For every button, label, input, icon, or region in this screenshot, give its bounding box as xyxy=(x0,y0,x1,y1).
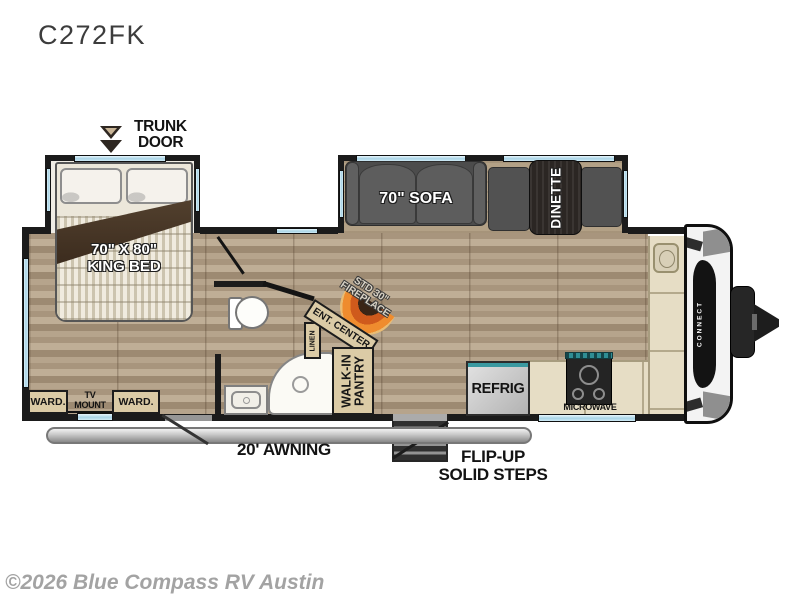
tv-mount-label: TV MOUNT xyxy=(68,391,112,413)
window-top-mid xyxy=(276,228,318,235)
wardrobe-right-label: WARD. xyxy=(119,396,154,408)
trunk-door-arrow2-icon xyxy=(100,140,122,153)
page-title: C272FK xyxy=(38,20,146,51)
trunk-door-label-line1: TRUNK xyxy=(134,119,187,135)
bath-wall-vertical xyxy=(215,354,221,414)
stove-burner-small-left xyxy=(572,388,584,400)
pantry-label-line1: WALK-IN xyxy=(340,354,353,407)
sofa: 70" SOFA xyxy=(345,161,487,226)
window-bedroom-left xyxy=(23,258,29,388)
front-cap-window: CONNECT xyxy=(693,260,716,388)
wardrobe-left-label: WARD. xyxy=(31,396,66,408)
hitch-jack xyxy=(752,314,757,330)
dinette-table: DINETTE xyxy=(529,160,582,235)
pillow-left xyxy=(60,168,122,204)
tv-window xyxy=(77,413,113,421)
wardrobe-right: WARD. xyxy=(112,390,160,414)
bath-sink-vanity xyxy=(224,385,268,415)
stove-burner-large xyxy=(579,365,599,385)
bath-faucet xyxy=(243,397,250,404)
stove-knob-panel xyxy=(565,352,613,359)
steps-label: FLIP-UP SOLID STEPS xyxy=(415,448,571,484)
sofa-label: 70" SOFA xyxy=(346,190,486,208)
king-bed-label-line2: KING BED xyxy=(57,259,191,276)
trunk-door-arrow-inner-icon xyxy=(105,128,117,135)
refrigerator: REFRIG xyxy=(466,361,530,416)
dinette-label: DINETTE xyxy=(548,167,563,228)
king-bed: 70" X 80" KING BED xyxy=(55,162,193,322)
front-cap-panel-top xyxy=(703,226,733,257)
wall-top-right xyxy=(628,227,688,234)
pantry-label: WALK-IN PANTRY xyxy=(340,354,366,407)
bedroom-slide-window-left xyxy=(46,168,51,212)
bedroom-slide-window-right xyxy=(195,168,200,212)
watermark: ©2026 Blue Compass RV Austin xyxy=(5,571,324,595)
slide-window-right-side xyxy=(623,170,628,218)
refrigerator-top-trim xyxy=(468,363,528,367)
front-cap: CONNECT xyxy=(684,224,733,424)
shower-drain xyxy=(292,376,309,393)
linen-label: LINEN xyxy=(309,330,316,351)
wardrobe-left: WARD. xyxy=(28,390,68,414)
king-bed-label-line1: 70" X 80" xyxy=(57,242,191,259)
bedroom-slide-window xyxy=(74,155,166,162)
front-cap-panel-bottom xyxy=(703,391,733,422)
linen-cabinet: LINEN xyxy=(304,322,321,359)
pillow-right xyxy=(126,168,188,204)
front-cap-trim-bottom xyxy=(684,397,703,412)
kitchen-window xyxy=(538,414,636,422)
king-bed-label: 70" X 80" KING BED xyxy=(57,242,191,276)
awning-label: 20' AWNING xyxy=(208,440,360,460)
stove-cooktop xyxy=(566,356,612,405)
kitchen-sink-basin xyxy=(659,250,675,268)
refrig-label: REFRIG xyxy=(472,381,525,397)
steps-label-line2: SOLID STEPS xyxy=(415,466,571,484)
microwave-label: MICROWAVE xyxy=(554,402,626,412)
toilet xyxy=(235,296,269,329)
trunk-door-label-line2: DOOR xyxy=(134,135,187,151)
entry-door-threshold xyxy=(391,414,449,421)
dinette-bench-right xyxy=(581,167,622,227)
walk-in-pantry: WALK-IN PANTRY xyxy=(332,347,374,415)
hitch-tongue xyxy=(754,304,779,342)
bath-wall-horizontal xyxy=(214,281,266,287)
trunk-door-label: TRUNK DOOR xyxy=(134,119,187,152)
kitchen-sink xyxy=(653,243,679,273)
pantry-label-line2: PANTRY xyxy=(353,354,366,407)
front-cap-trim-top xyxy=(684,236,703,251)
dinette-bench-left xyxy=(488,167,530,231)
tv-mount-label-line2: MOUNT xyxy=(68,401,112,413)
steps-label-line1: FLIP-UP xyxy=(415,448,571,466)
slide-window-left-side xyxy=(339,170,344,218)
floorplan-canvas: C272FK TRUNK DOOR 70" X 80" KING BED 70"… xyxy=(0,0,800,600)
stove-burner-small-right xyxy=(593,388,605,400)
brand-label: CONNECT xyxy=(696,301,703,347)
